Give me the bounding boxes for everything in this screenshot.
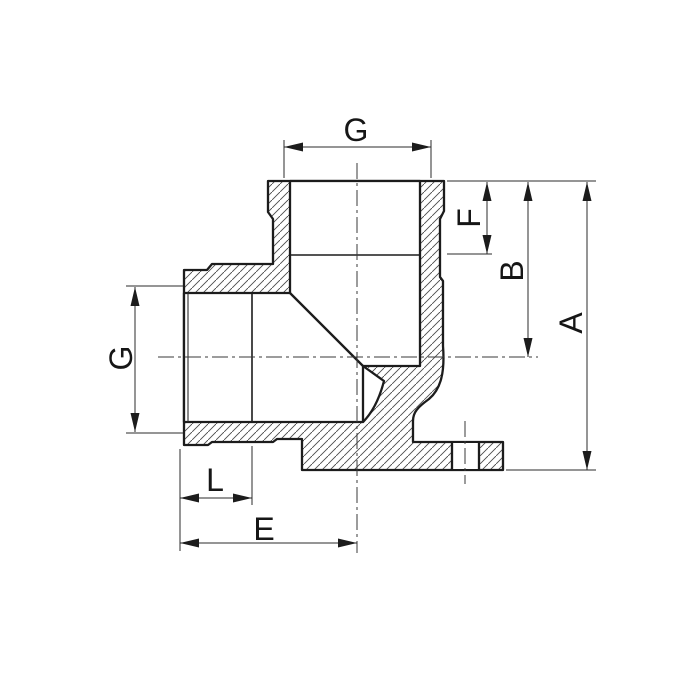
drawing-page: G F B A G L E [0, 0, 700, 700]
dim-label-g-side: G [103, 346, 139, 371]
arrowhead-down [524, 338, 533, 357]
technical-drawing-canvas: G F B A G L E [0, 0, 700, 700]
dim-label-l: L [206, 462, 224, 498]
dim-label-a: A [553, 312, 589, 334]
arrowhead-left [180, 539, 199, 548]
arrowhead-right [233, 494, 252, 503]
arrowhead-up [583, 182, 592, 201]
arrowhead-down [483, 235, 492, 254]
arrowhead-right [338, 539, 357, 548]
dim-label-g-top: G [344, 112, 369, 148]
arrowhead-down [583, 451, 592, 470]
dim-label-e: E [253, 511, 274, 547]
arrowhead-right [412, 143, 431, 152]
arrowhead-up [131, 287, 140, 306]
arrowhead-down [131, 413, 140, 432]
arrowhead-left [284, 143, 303, 152]
dim-label-f: F [451, 208, 487, 228]
arrowhead-up [524, 182, 533, 201]
arrowhead-left [180, 494, 199, 503]
dim-label-b: B [494, 260, 530, 281]
arrowhead-up [483, 182, 492, 201]
